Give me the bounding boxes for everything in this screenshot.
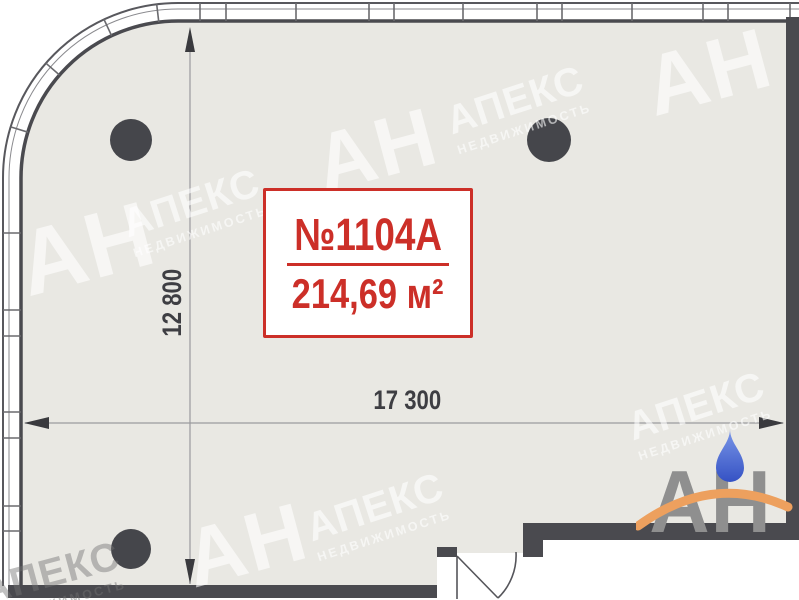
unit-area: 214,69 м² bbox=[275, 273, 460, 315]
dimension-height-value: 12 800 bbox=[157, 269, 188, 337]
agency-logo: АН bbox=[636, 414, 799, 559]
door bbox=[457, 552, 516, 599]
dimension-width-label: 17 300 bbox=[352, 385, 462, 415]
column-top-left bbox=[110, 119, 152, 161]
water-drop-icon bbox=[714, 428, 746, 486]
unit-area-value: 214,69 м² bbox=[292, 273, 444, 315]
dimension-width-value: 17 300 bbox=[373, 385, 441, 416]
window-mullions-left bbox=[3, 233, 21, 531]
door-leaf bbox=[457, 556, 498, 598]
unit-info-box: №1104А 214,69 м² bbox=[263, 188, 473, 338]
wall-step bbox=[523, 523, 543, 557]
window-mullions-top bbox=[200, 3, 790, 21]
dimension-height-label: 12 800 bbox=[157, 258, 187, 348]
unit-number: №1104А bbox=[278, 211, 458, 258]
wall-door-jamb bbox=[437, 547, 457, 557]
unit-number-value: №1104А bbox=[294, 211, 442, 258]
door-swing-arc bbox=[498, 552, 516, 598]
floor-plan-page: АН АН АН АН АПЕКС НЕДВИЖИМОСТЬ АПЕКС НЕД… bbox=[0, 0, 799, 600]
unit-box-divider bbox=[287, 263, 449, 266]
